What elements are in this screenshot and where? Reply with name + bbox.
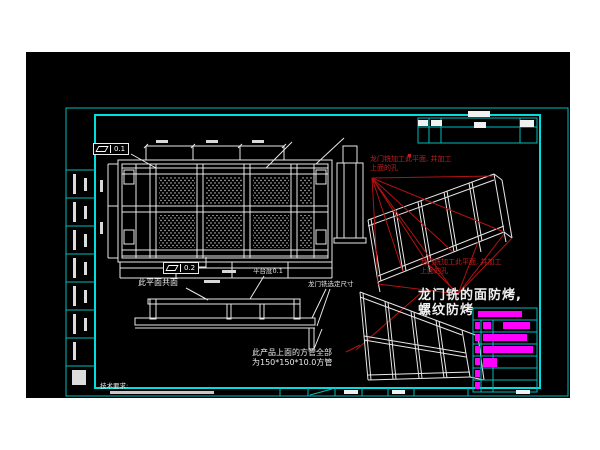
red-note-mid: 龙门铣加工此平面, 并加工 上面的孔 [420, 258, 501, 276]
cad-linework [26, 52, 570, 398]
gdt-value: 0.1 [114, 145, 125, 153]
cad-viewport: 0.1 0.2 此平面共面 平台度0.1 龙门铣选定尺寸 龙门铣加工此平面, 并… [26, 52, 570, 398]
plan-view-drawing [100, 138, 344, 283]
note-square-tube: 此产品上面的方管全部 为150*150*10.0方管 [252, 348, 332, 368]
gdt-divider [180, 264, 181, 272]
note-flatness: 平台度0.1 [253, 267, 283, 275]
flatness-symbol-icon [165, 265, 178, 271]
left-revision-strip [66, 170, 95, 385]
gdt-divider [110, 145, 111, 153]
note-tech-req: 技术要求: [100, 382, 128, 390]
end-view-drawing [334, 146, 366, 243]
flatness-symbol-icon [95, 146, 108, 152]
note-anti-bake-line2: 螺纹防烤 [418, 303, 522, 318]
red-note-mid-line2: 上面的孔 [420, 267, 501, 276]
note-coplanar: 此平面共面 [138, 278, 178, 288]
red-note-top: 龙门铣加工此平面, 并加工 上面的孔 [370, 155, 451, 173]
plan-top-dimensions [144, 140, 286, 160]
gdt-flatness-callout-top: 0.1 [93, 143, 129, 155]
note-anti-bake: 龙门铣的面防烤, 螺纹防烤 [418, 288, 522, 319]
note-anti-bake-line1: 龙门铣的面防烤, [418, 288, 522, 303]
tech-note-text-bar [110, 391, 214, 394]
gdt-flatness-callout-bottom: 0.2 [163, 262, 199, 274]
red-note-top-line1: 龙门铣加工此平面, 并加工 [370, 155, 451, 164]
note-square-tube-line2: 为150*150*10.0方管 [252, 358, 332, 368]
red-note-top-line2: 上面的孔 [370, 164, 451, 173]
plan-left-dimensions [100, 164, 118, 258]
top-title-table [408, 111, 537, 157]
screenshot-page: 0.1 0.2 此平面共面 平台度0.1 龙门铣选定尺寸 龙门铣加工此平面, 并… [0, 0, 600, 450]
red-note-mid-line1: 龙门铣加工此平面, 并加工 [420, 258, 501, 267]
note-square-tube-line1: 此产品上面的方管全部 [252, 348, 332, 358]
note-gantry-dim: 龙门铣选定尺寸 [308, 280, 354, 288]
gdt-value: 0.2 [184, 264, 195, 272]
